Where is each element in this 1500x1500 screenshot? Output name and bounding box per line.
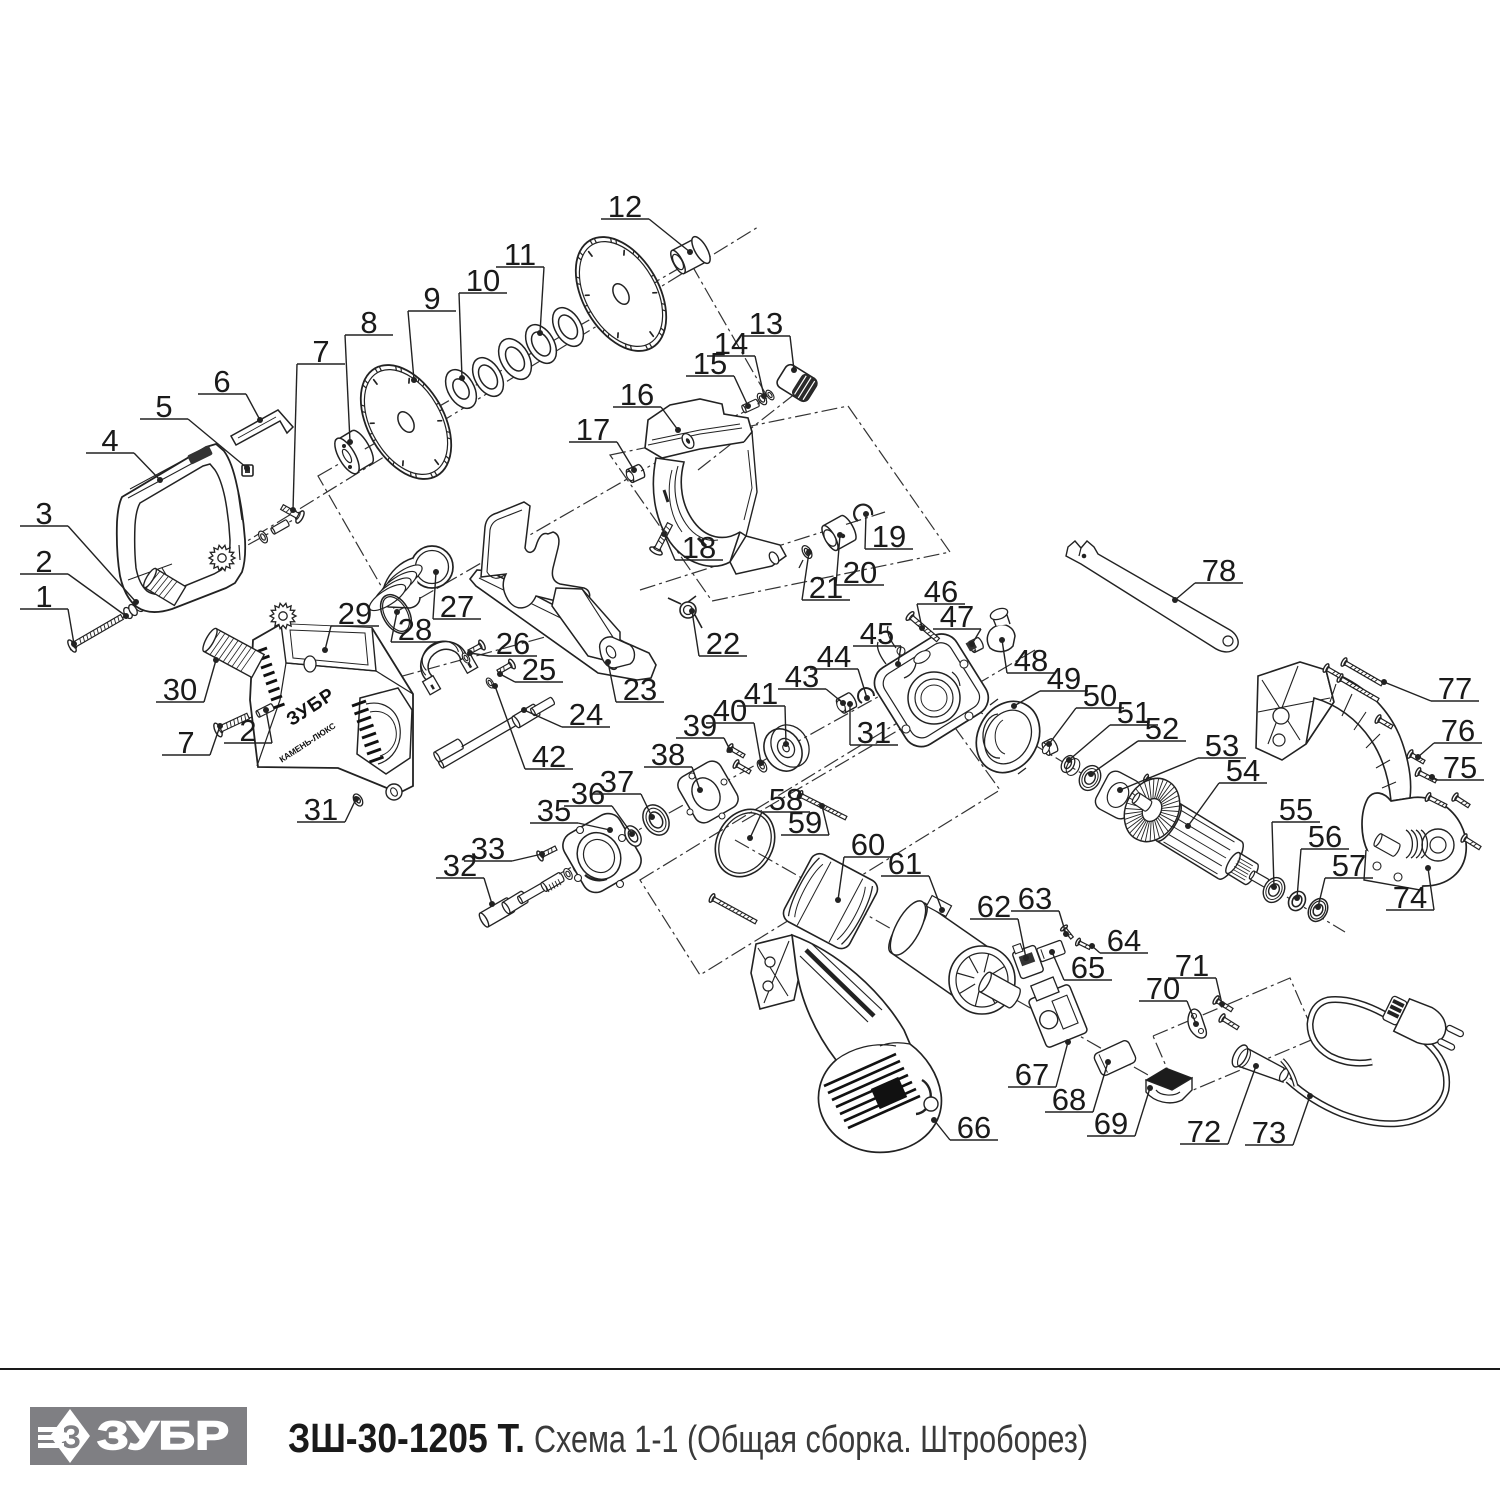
svg-text:ЗШ-30-1205 Т.: ЗШ-30-1205 Т. — [288, 1415, 525, 1461]
svg-text:Схема 1-1 (Общая сборка. Штроб: Схема 1-1 (Общая сборка. Штроборез) — [534, 1419, 1088, 1461]
svg-text:З: З — [61, 1419, 81, 1455]
svg-text:ЗУБР: ЗУБР — [97, 1414, 229, 1458]
